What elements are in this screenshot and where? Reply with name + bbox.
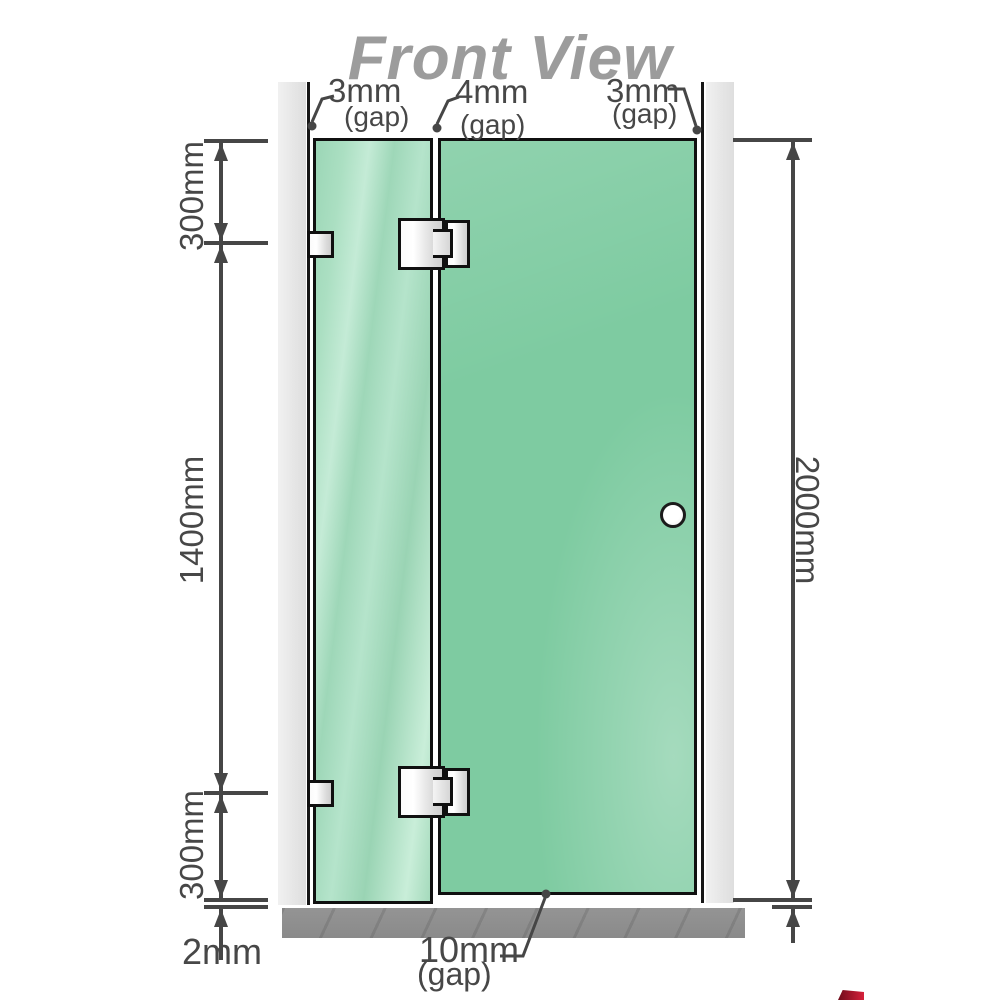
- wall-clamp-bottom: [307, 780, 334, 807]
- gap-label-top-middle-value: 4mm: [455, 77, 528, 107]
- gap-label-top-middle-suffix: (gap): [460, 112, 525, 138]
- hinge-knuckle: [433, 777, 453, 806]
- dim-label-floor-clearance-2mm: 2mm: [182, 931, 262, 973]
- diagram-canvas: Front View: [0, 0, 1000, 1000]
- wall-clamp-top: [307, 231, 334, 258]
- gap-label-top-right-suffix: (gap): [612, 101, 677, 127]
- gap-label-bottom-suffix: (gap): [417, 961, 492, 987]
- hinge-knuckle: [433, 229, 453, 258]
- corner-logo-mark: [838, 990, 864, 1000]
- gap-label-top-left-suffix: (gap): [344, 104, 409, 130]
- right-wall-inner-edge: [701, 82, 704, 903]
- right-wall: [706, 82, 734, 903]
- door-handle-knob: [660, 502, 686, 528]
- left-wall: [278, 82, 306, 905]
- door-glass-panel: [438, 138, 697, 895]
